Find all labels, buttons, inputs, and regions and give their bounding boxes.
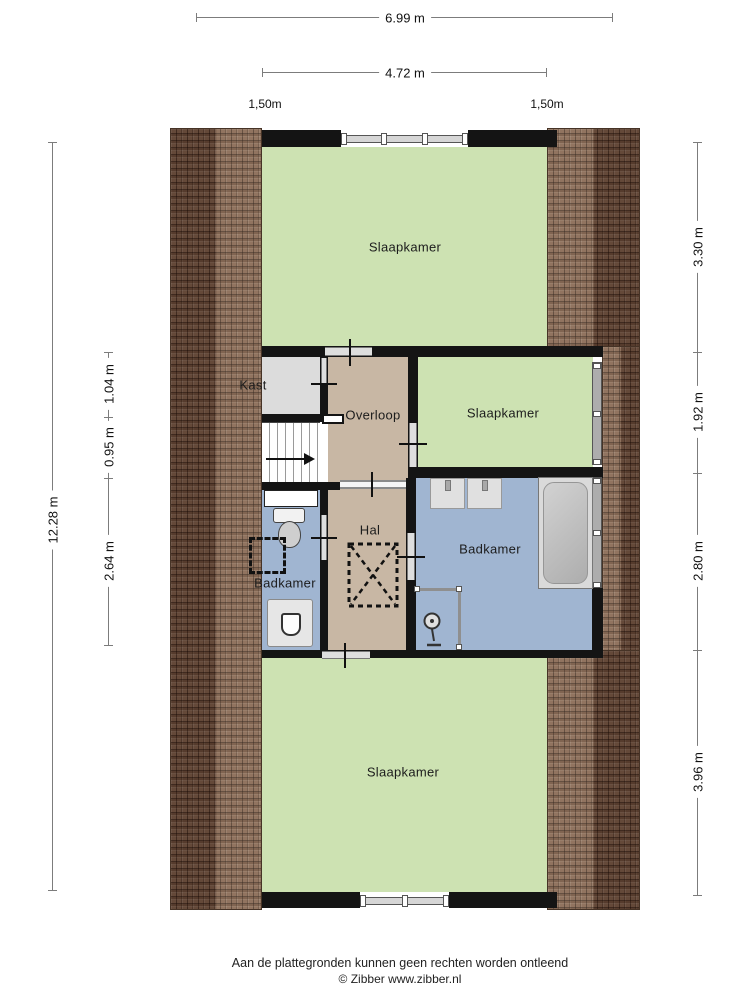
window-post: [360, 895, 366, 907]
dim-label-badkamer-depth: 2.64 m: [102, 535, 117, 587]
window-post: [593, 478, 601, 484]
opening-overloop-hal: [340, 480, 406, 489]
window-post: [341, 133, 347, 145]
window-top: [341, 130, 468, 147]
room-label-kast: Kast: [239, 378, 266, 393]
dim-tick: [693, 473, 702, 474]
dim-label-kast-depth: 1.04 m: [102, 358, 117, 410]
window-bottom: [360, 892, 449, 908]
attic-hatch-icon: [347, 542, 399, 608]
shower-glass-vertical: [458, 588, 461, 648]
dim-label-right-eave: 1,50m: [530, 97, 563, 111]
window-post: [443, 895, 449, 907]
shower-glass-post: [456, 644, 462, 650]
door-tick: [311, 537, 337, 539]
wall: [449, 892, 557, 908]
roof-left: [170, 128, 262, 910]
shower-glass-horizontal: [417, 588, 461, 591]
window-post: [462, 133, 468, 145]
roof-right-top: [547, 128, 640, 347]
bathroom-shelf: [264, 490, 318, 507]
window-post: [593, 411, 601, 417]
dim-tick: [104, 478, 113, 479]
dim-tick: [104, 417, 113, 418]
door-tick: [397, 556, 425, 558]
room-label-slaapkamer-bottom: Slaapkamer: [367, 765, 439, 780]
window-post: [593, 363, 601, 369]
door-slaapkamer-bottom: [322, 651, 370, 659]
dim-tick: [104, 352, 113, 353]
door-kast: [321, 358, 327, 384]
shower-area-left: [249, 537, 286, 574]
dim-tick: [546, 68, 547, 77]
room-label-badkamer-right: Badkamer: [459, 542, 521, 557]
sink-icon: [430, 478, 465, 509]
room-kast: [262, 357, 320, 414]
dim-tick: [693, 895, 702, 896]
window-post: [593, 582, 601, 588]
dim-tick: [693, 352, 702, 353]
dim-tick: [693, 650, 702, 651]
stair-opening-notch: [322, 414, 344, 424]
dim-tick: [262, 68, 263, 77]
wall: [262, 346, 603, 357]
dim-label-right-lower: 2.80 m: [691, 535, 706, 587]
wall: [262, 892, 360, 908]
window-right-bedroom: [592, 362, 602, 465]
dim-label-right-bottom: 3.96 m: [691, 746, 706, 798]
window-post: [593, 530, 601, 536]
wall: [262, 482, 340, 490]
dim-label-overall-width: 6.99 m: [379, 11, 431, 26]
door-tick: [344, 643, 346, 668]
window-post: [422, 133, 428, 145]
faucet-icon: [482, 480, 488, 491]
footer-disclaimer: Aan de plattegronden kunnen geen rechten…: [0, 956, 750, 970]
shower-glass-post: [456, 586, 462, 592]
window-post: [402, 895, 408, 907]
footer-copyright: © Zibber www.zibber.nl: [0, 972, 750, 986]
dim-tick: [48, 142, 57, 143]
wall: [262, 650, 603, 658]
roof-right-middle: [602, 346, 640, 651]
wall: [592, 588, 603, 650]
shower-head-icon: [421, 612, 447, 650]
dim-label-right-top: 3.30 m: [691, 221, 706, 273]
wall: [262, 130, 341, 147]
washbasin-icon: [281, 613, 301, 636]
floorplan-page: Slaapkamer Kast Overloop Slaapkamer Hal …: [0, 0, 750, 1000]
roof-right-bottom: [547, 650, 640, 910]
room-label-slaapkamer-top: Slaapkamer: [369, 240, 441, 255]
room-label-hal: Hal: [360, 523, 380, 538]
bathtub-inner: [543, 482, 588, 584]
door-slaapkamer-right: [409, 423, 417, 467]
dim-tick: [612, 13, 613, 22]
room-label-badkamer-left: Badkamer: [254, 576, 316, 591]
stairs-direction-arrow: [266, 458, 306, 460]
dim-label-left-eave: 1,50m: [248, 97, 281, 111]
wall: [262, 414, 328, 422]
door-tick: [371, 472, 373, 497]
dim-tick: [48, 890, 57, 891]
faucet-icon: [445, 480, 451, 491]
shower-glass-post: [414, 586, 420, 592]
window-frame: [342, 135, 467, 143]
dim-label-overall-height: 12.28 m: [46, 491, 61, 550]
dim-tick: [196, 13, 197, 22]
sink-icon: [467, 478, 502, 509]
dim-tick: [693, 142, 702, 143]
dim-label-inner-width: 4.72 m: [379, 66, 431, 81]
door-tick: [399, 443, 427, 445]
dim-label-stairs-depth: 0.95 m: [102, 421, 117, 473]
door-tick: [311, 383, 337, 385]
stairs-arrow-head-icon: [304, 453, 315, 465]
wall: [468, 130, 557, 147]
door-tick: [349, 339, 351, 366]
wall: [320, 482, 328, 650]
dim-label-right-mid: 1.92 m: [691, 386, 706, 438]
window-post: [381, 133, 387, 145]
room-label-slaapkamer-right: Slaapkamer: [467, 406, 539, 421]
window-post: [593, 459, 601, 465]
dim-tick: [104, 645, 113, 646]
room-label-overloop: Overloop: [345, 408, 400, 423]
window-right-bathroom: [592, 477, 602, 588]
